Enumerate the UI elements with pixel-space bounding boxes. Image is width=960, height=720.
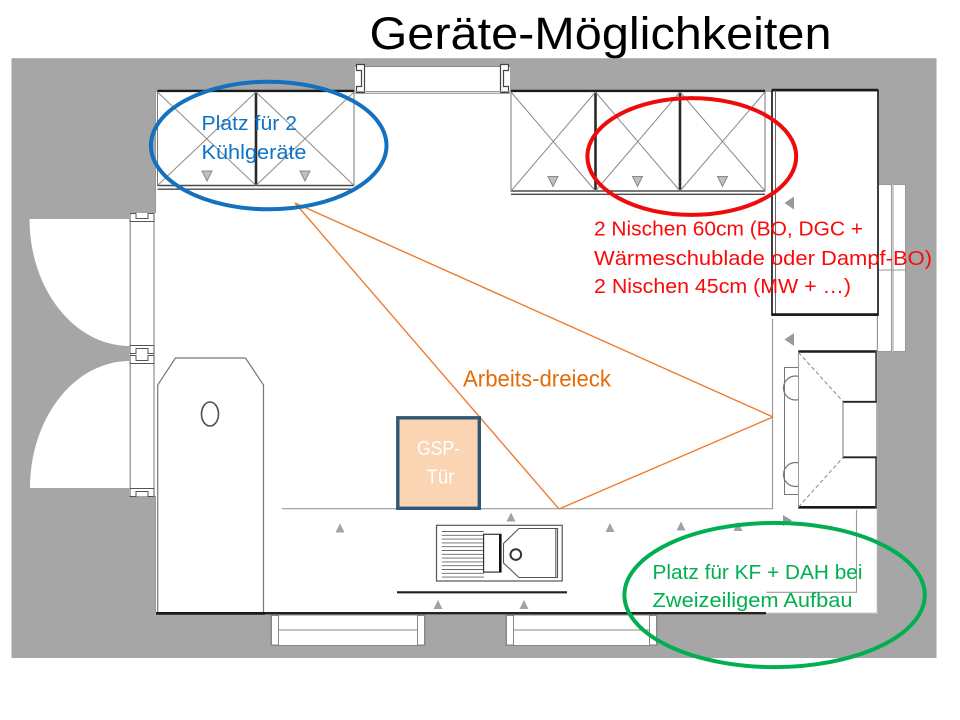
svg-text:Kühlgeräte: Kühlgeräte bbox=[202, 142, 307, 164]
svg-text:Tür: Tür bbox=[427, 467, 455, 489]
svg-text:Platz für 2: Platz für 2 bbox=[202, 113, 298, 135]
svg-text:Platz für KF + DAH bei: Platz für KF + DAH bei bbox=[653, 562, 863, 584]
svg-text:Geräte-Möglichkeiten: Geräte-Möglichkeiten bbox=[370, 8, 832, 59]
svg-text:Wärmeschublade oder Dampf-BO): Wärmeschublade oder Dampf-BO) bbox=[594, 248, 932, 270]
svg-text:GSP-: GSP- bbox=[417, 438, 460, 460]
svg-text:Arbeits-dreieck: Arbeits-dreieck bbox=[463, 366, 611, 392]
svg-text:Zweizeiligem Aufbau: Zweizeiligem Aufbau bbox=[653, 590, 853, 612]
svg-text:2 Nischen 60cm (BO, DGC +: 2 Nischen 60cm (BO, DGC + bbox=[594, 219, 863, 241]
svg-text:2 Nischen 45cm (MW + …): 2 Nischen 45cm (MW + …) bbox=[594, 276, 851, 298]
